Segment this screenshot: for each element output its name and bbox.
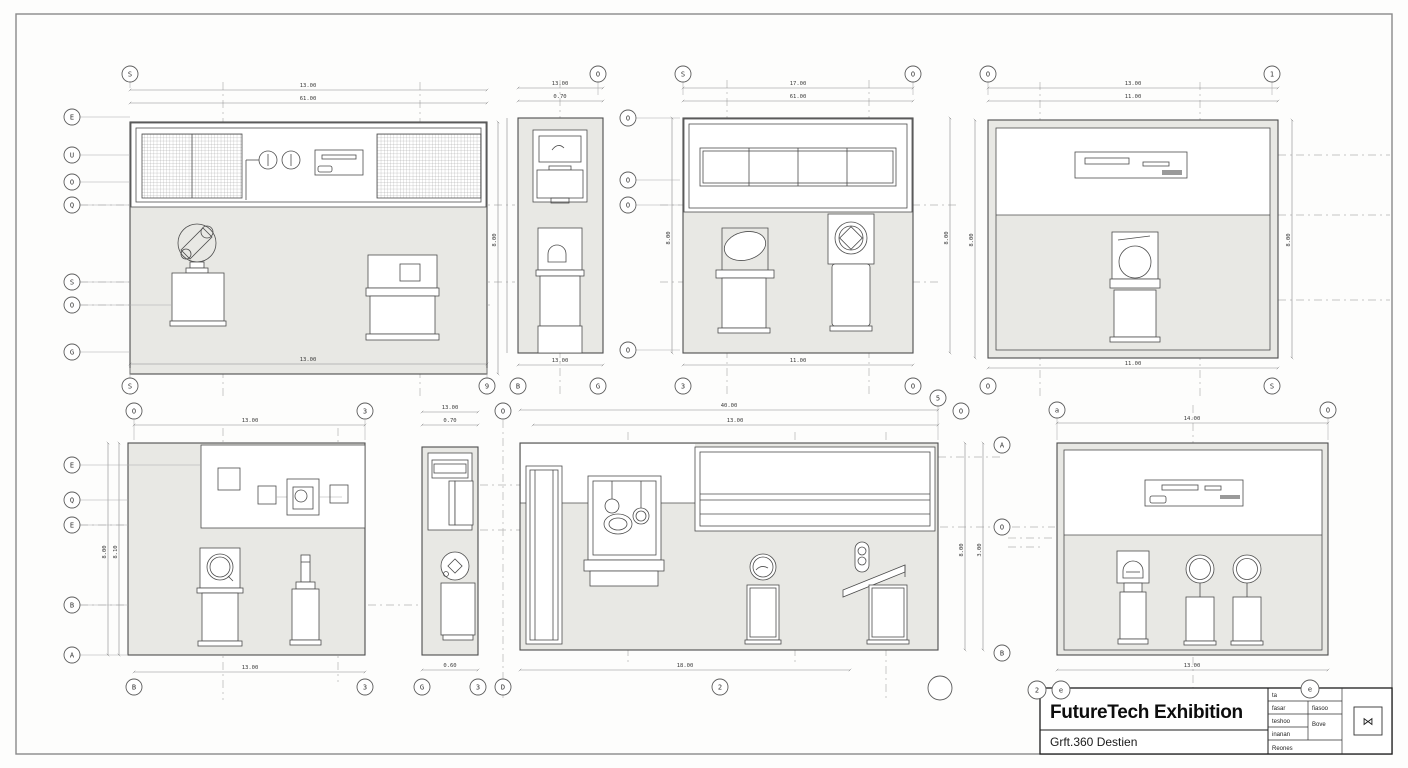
- dimension-label: 13.00: [300, 357, 317, 363]
- bubble-label: B: [1000, 650, 1004, 658]
- title-block: FutureTech Exhibition Grft.360 Destien t…: [1028, 680, 1392, 754]
- ring-exhibit: [828, 214, 874, 331]
- display-case: [536, 228, 584, 353]
- dimension-label: 13.00: [552, 358, 569, 364]
- capsule-exhibit: [855, 542, 869, 572]
- display-case: [366, 255, 439, 340]
- stamp-icon: ⋈: [1363, 715, 1374, 728]
- bubble-label: O: [626, 347, 630, 355]
- dimension-label: 61.00: [300, 96, 317, 102]
- bubble-label: O: [501, 408, 505, 416]
- bubble-label: O: [626, 202, 630, 210]
- bubble-label: E: [70, 522, 74, 530]
- dimension-label: 0.60: [443, 663, 456, 669]
- bubble-label: a: [1055, 407, 1059, 415]
- bubble-label: D: [501, 684, 505, 692]
- bubble-label: B: [516, 383, 520, 391]
- dimension-label: 0.70: [443, 418, 456, 424]
- bubble-label: 5: [936, 395, 940, 403]
- dimension-label: 11.00: [1125, 94, 1142, 100]
- dimension-label: 8.00: [969, 233, 975, 246]
- pedestal: [441, 583, 475, 640]
- table-cell: ta: [1272, 693, 1278, 699]
- bubble-label: B: [70, 602, 74, 610]
- display-plate: [315, 150, 363, 175]
- bubble-label: S: [128, 71, 132, 79]
- bubble-label: S: [128, 383, 132, 391]
- bubble-label: S: [681, 71, 685, 79]
- bubble-label: O: [1000, 524, 1004, 532]
- window-strip: [700, 148, 896, 186]
- dimension-label: 3.00: [977, 543, 983, 556]
- dimension-label: 13.00: [1184, 663, 1201, 669]
- sign-board: [1145, 480, 1243, 506]
- bubble-label: 3: [681, 383, 685, 391]
- porthole-unit: [197, 548, 243, 646]
- table-cell: teshoo: [1272, 719, 1291, 725]
- bubble-label: G: [420, 684, 424, 692]
- elevation-4: 13.00 11.00 11.00 8.00 8.00 O 1 O S: [969, 66, 1292, 394]
- dimension-label: 8.00: [492, 233, 498, 246]
- bubble-label: G: [596, 383, 600, 391]
- elevation-7: 40.00 13.00 18.00 8.00 3.00 5 O 2 A O B: [520, 390, 1010, 700]
- bubble-label: O: [626, 115, 630, 123]
- bubble-label: 9: [485, 383, 489, 391]
- dimension-label: 8.00: [959, 543, 965, 556]
- monitor-unit: [533, 130, 587, 203]
- dimension-label: 61.00: [790, 94, 807, 100]
- wall-console: [428, 453, 473, 530]
- empty-bubble: [928, 676, 952, 700]
- bubble-label: E: [70, 114, 74, 122]
- vitrine: [584, 476, 664, 586]
- bubble-label: U: [70, 152, 74, 160]
- table-cell: Bove: [1312, 722, 1326, 728]
- dimension-label: 8.00: [666, 231, 672, 244]
- mesh-panel-right: [377, 134, 481, 198]
- window-band: [695, 447, 935, 531]
- dimension-label: 11.00: [1125, 361, 1142, 367]
- dimension-label: 13.00: [300, 83, 317, 89]
- elevation-6: 13.00 0.70 0.60 O G 3 D: [414, 403, 511, 695]
- dimension-label: 0.70: [553, 94, 566, 100]
- ring-pedestal-b: [1231, 555, 1263, 645]
- project-title: FutureTech Exhibition: [1050, 702, 1243, 723]
- table-cell: Reones: [1272, 746, 1293, 752]
- bubble-label: O: [911, 71, 915, 79]
- dimension-label: 13.00: [242, 418, 259, 424]
- table-cell: fasar: [1272, 706, 1285, 712]
- dimension-label: 11.00: [790, 358, 807, 364]
- bubble-label: S: [1270, 383, 1274, 391]
- bubble-label: Q: [70, 202, 74, 210]
- elevation-3: 17.00 61.00 11.00 8.00 S O 3 O: [675, 66, 950, 394]
- sign-board: [1075, 152, 1187, 178]
- dimension-label: 14.00: [1184, 416, 1201, 422]
- bubble-label: S: [70, 279, 74, 287]
- bubble-label: O: [626, 177, 630, 185]
- bubble-label: O: [596, 71, 600, 79]
- elevation-2: 13.00 0.70 13.00 8.00 O B G O O O O: [510, 66, 680, 394]
- dimension-label: 8.00: [944, 231, 950, 244]
- dimension-label: 17.00: [790, 81, 807, 87]
- project-subtitle: Grft.360 Destien: [1050, 735, 1137, 749]
- bubble-label: O: [132, 408, 136, 416]
- bubble-label: O: [70, 302, 74, 310]
- bubble-label: E: [70, 462, 74, 470]
- cad-drawing: 13.00 61.00 13.00 8.00 S S 9 E U O Q S O…: [0, 0, 1408, 768]
- bubble-label: 1: [1270, 71, 1274, 79]
- bubble-label: 3: [363, 684, 367, 692]
- stamp-box: ⋈: [1354, 707, 1382, 735]
- dome-exhibit: [1117, 551, 1149, 644]
- dimension-label: 13.00: [727, 418, 744, 424]
- bubble-label: 3: [363, 408, 367, 416]
- bubble-label: G: [70, 349, 74, 357]
- elevation-1: 13.00 61.00 13.00 8.00 S S 9 E U O Q S O…: [64, 66, 507, 394]
- ring-pedestal-a: [1184, 555, 1216, 645]
- dimension-label: 13.00: [552, 81, 569, 87]
- elevation-5: 13.00 13.00 8.00 8.10 O 3 B 3 E Q E B A: [64, 403, 373, 695]
- table-cell: inanan: [1272, 732, 1290, 738]
- bubble-label: O: [1326, 407, 1330, 415]
- door-panel: [526, 466, 562, 644]
- bubble-label: O: [986, 383, 990, 391]
- bubble-label: 3: [476, 684, 480, 692]
- drawing-sheet: 13.00 61.00 13.00 8.00 S S 9 E U O Q S O…: [0, 0, 1408, 768]
- bubble-label: O: [911, 383, 915, 391]
- bubble-label: 2: [718, 684, 722, 692]
- display-case: [1110, 232, 1160, 342]
- bubble-label: O: [986, 71, 990, 79]
- disc-exhibit: [441, 552, 469, 580]
- pedestal: [867, 585, 909, 644]
- pedestal: [172, 273, 224, 321]
- bubble-label: O: [70, 179, 74, 187]
- bubble-label: O: [959, 408, 963, 416]
- dimension-label: 8.10: [113, 545, 119, 558]
- dimension-label: 13.00: [242, 665, 259, 671]
- elevation-8: 14.00 13.00 a O: [1049, 402, 1336, 670]
- dimension-label: 8.00: [102, 545, 108, 558]
- dimension-label: 18.00: [677, 663, 694, 669]
- bubble-label: 2: [1035, 687, 1039, 695]
- dimension-label: 8.00: [1286, 233, 1292, 246]
- dimension-label: 40.00: [721, 403, 738, 409]
- dimension-label: 13.00: [1125, 81, 1142, 87]
- porthole-pedestal: [745, 554, 781, 644]
- bubble-label: e: [1308, 686, 1312, 694]
- gallery-panel: [201, 445, 365, 528]
- table-cell: fiasoo: [1312, 706, 1329, 712]
- bubble-label: B: [132, 684, 136, 692]
- dimension-label: 13.00: [442, 405, 459, 411]
- bubble-label: Q: [70, 497, 74, 505]
- bubble-label: e: [1059, 687, 1063, 695]
